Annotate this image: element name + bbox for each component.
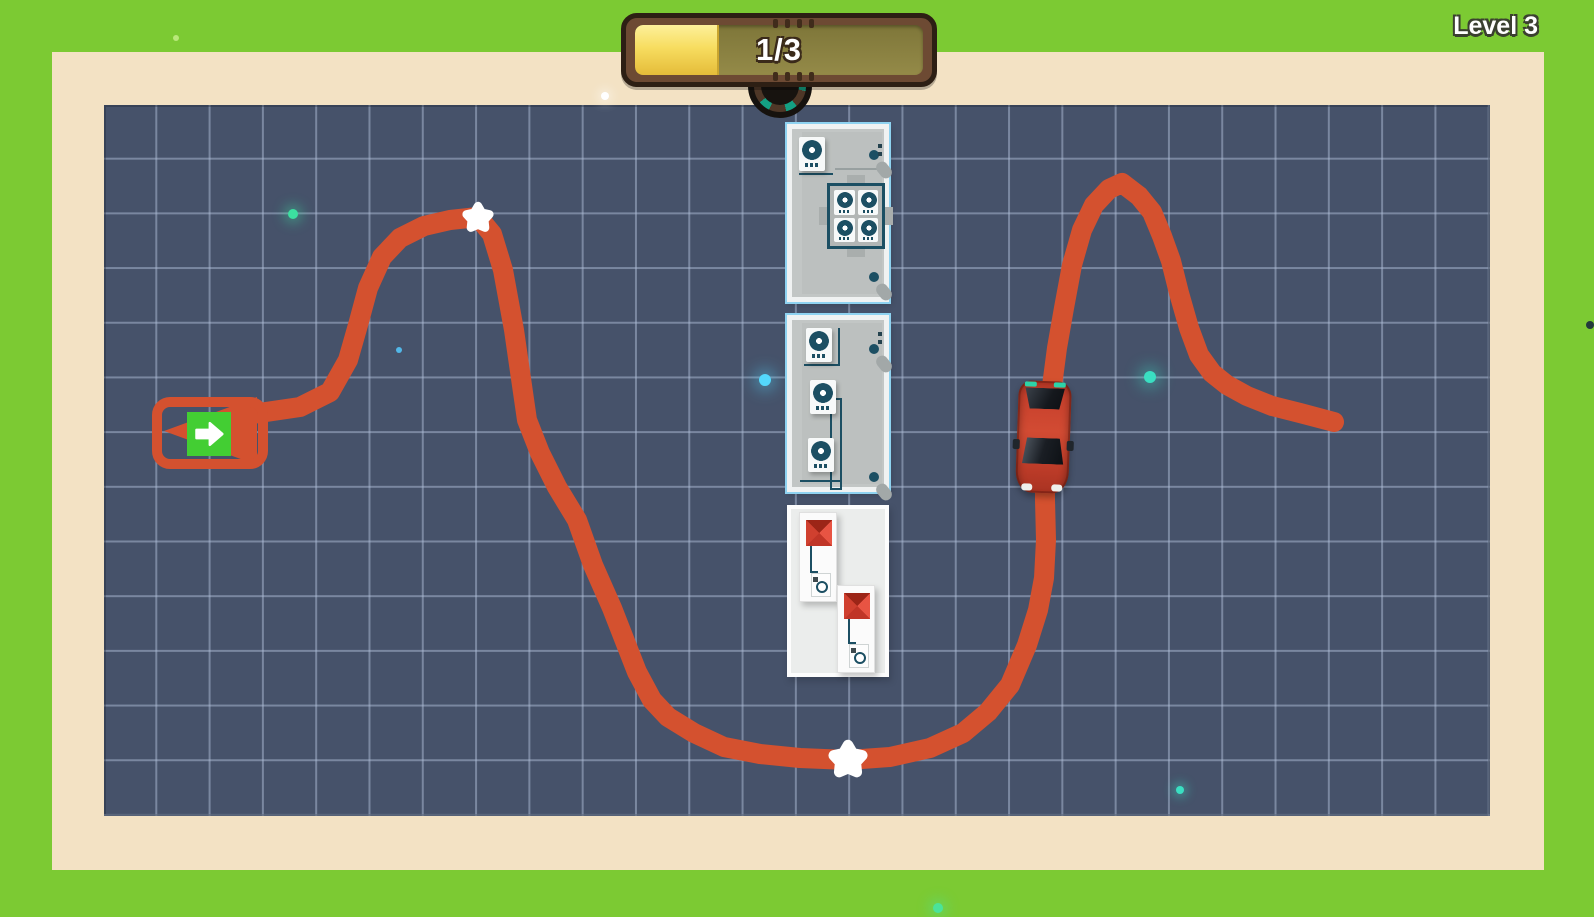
progress-bar: 1/3 — [621, 13, 937, 87]
bar-notch — [797, 72, 802, 81]
ac-cluster-icon — [827, 183, 885, 249]
particle-dot — [1586, 321, 1594, 329]
roof-vent-icon — [869, 272, 879, 282]
bar-notch — [773, 19, 778, 28]
duct-line — [838, 328, 840, 366]
skylight-icon — [806, 520, 832, 546]
car-rear-window — [1024, 387, 1066, 409]
cluster-pad — [885, 207, 893, 225]
duct-line — [804, 364, 840, 366]
progress-label: 1/3 — [626, 18, 932, 82]
car-mirror — [1067, 441, 1074, 451]
ac-unit-icon — [858, 218, 879, 243]
car-windshield — [1021, 437, 1065, 464]
bar-notch — [773, 72, 778, 81]
car-mirror — [1013, 439, 1020, 449]
particle-dot — [933, 903, 943, 913]
car-headlight — [1051, 484, 1062, 491]
ac-unit-icon — [810, 380, 836, 414]
duct-line — [810, 546, 812, 573]
ac-unit-icon — [808, 438, 834, 472]
duct-line — [848, 642, 856, 644]
bar-notch — [809, 19, 814, 28]
ac-unit-icon — [834, 218, 855, 243]
duct-line — [800, 480, 842, 482]
duct-line — [799, 173, 833, 175]
ac-unit-icon — [834, 190, 855, 215]
player-car[interactable] — [1015, 380, 1072, 494]
duct-line — [810, 571, 818, 573]
bar-notch — [785, 72, 790, 81]
roof-unit — [799, 512, 837, 602]
cluster-pad — [847, 249, 865, 257]
exit-arrow-icon — [192, 419, 226, 449]
building-top — [787, 124, 889, 302]
duct-line — [848, 619, 850, 644]
game-stage: 1/3 Level 3 — [0, 0, 1594, 917]
cluster-pad — [819, 207, 827, 225]
bar-notch — [797, 19, 802, 28]
skylight-icon — [844, 593, 870, 619]
car-taillight — [1025, 381, 1037, 386]
roof-vent-box-icon — [849, 644, 869, 668]
bar-notch — [785, 19, 790, 28]
ac-unit-icon — [799, 137, 825, 171]
roof-vent-icon — [869, 344, 879, 354]
car-taillight — [1054, 382, 1066, 387]
building-middle — [787, 315, 889, 492]
roof-unit — [837, 585, 875, 673]
roof-vent-icon — [869, 472, 879, 482]
exit-pad[interactable] — [187, 412, 231, 456]
roof-dots — [878, 332, 882, 344]
roof-dots — [878, 144, 882, 156]
building-bottom — [787, 505, 889, 677]
ac-unit-icon — [806, 328, 832, 362]
cluster-pad — [847, 175, 865, 183]
car-headlight — [1021, 483, 1032, 490]
bar-notch — [809, 72, 814, 81]
ac-unit-icon — [858, 190, 879, 215]
level-label: Level 3 — [1453, 12, 1538, 41]
particle-dot — [173, 35, 179, 41]
roof-vent-box-icon — [811, 573, 831, 597]
